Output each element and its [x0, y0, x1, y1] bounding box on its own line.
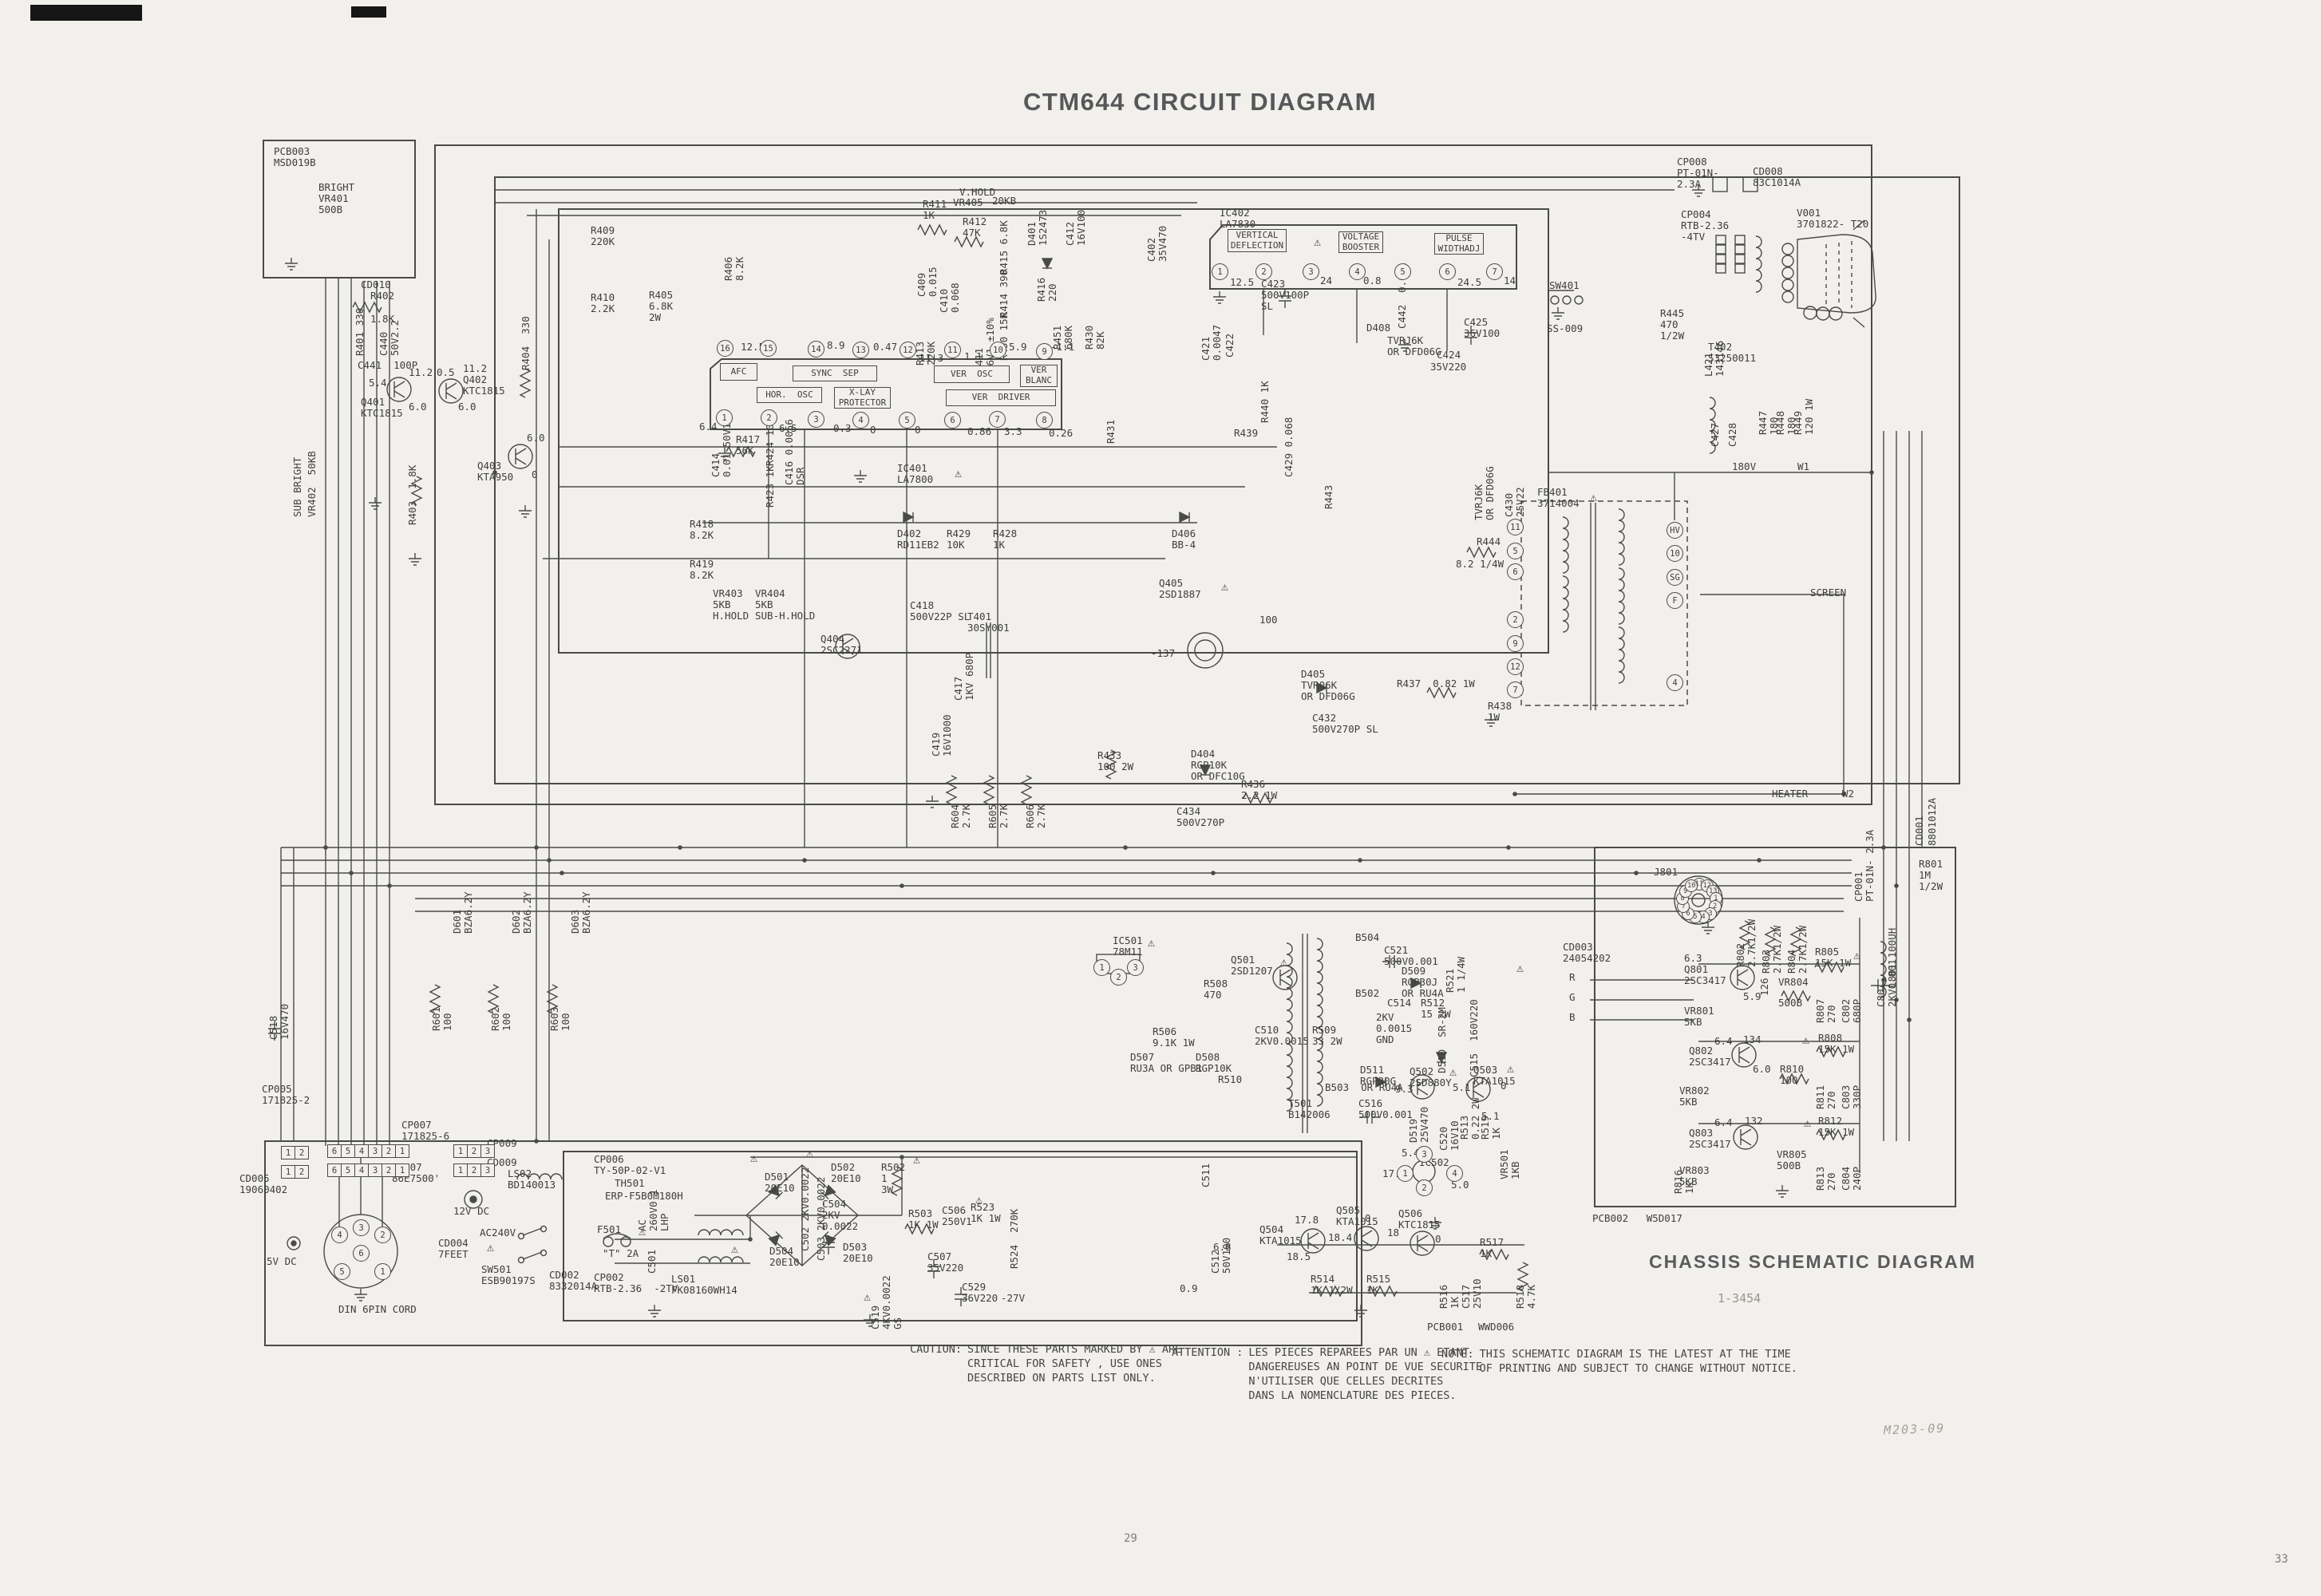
warning-icon: ⚠	[864, 1291, 871, 1303]
pin-number: 6	[353, 1245, 370, 1262]
component-label: 6.4	[1714, 1117, 1733, 1128]
component-label: 20KB	[992, 196, 1016, 207]
pin-number: 5	[334, 1263, 350, 1280]
pin-number: 15	[760, 340, 777, 357]
component-label: C529 36V220	[962, 1282, 998, 1304]
component-label: 11.3	[919, 353, 943, 364]
component-label: CD001	[1914, 816, 1925, 846]
component-label: C516 500V0.001	[1358, 1098, 1413, 1120]
chassis-title: CHASSIS SCHEMATIC DIAGRAM	[1649, 1251, 1976, 1273]
component-label: 0	[1435, 1234, 1441, 1245]
connector-pin: 1	[395, 1164, 409, 1176]
component-label: R411 1K	[923, 199, 947, 221]
pin-number: 8	[1036, 412, 1053, 429]
component-label: 8801012A	[1927, 798, 1938, 846]
handwritten-mark: M203-09	[1884, 1421, 1946, 1438]
junction-dots	[323, 470, 1912, 1242]
component-label: C504 2KV 0.0022	[822, 1199, 858, 1232]
component-label: 0.5	[437, 367, 455, 378]
function-block: VER OSC	[934, 365, 1010, 383]
component-label: Q404 2SC2271	[820, 634, 863, 656]
component-label: C803 330P	[1841, 1085, 1863, 1109]
component-label: C409 0.015	[916, 267, 939, 297]
component-label: R433 100 2W	[1097, 750, 1133, 772]
component-label: R503 1K 1W	[908, 1208, 939, 1231]
pin-number: 9	[1036, 343, 1053, 360]
component-label: 17.8	[1295, 1215, 1319, 1226]
component-label: R444	[1477, 536, 1501, 547]
page-number-right: 33	[2275, 1553, 2288, 1566]
component-label: 35V220	[1430, 361, 1466, 373]
component-label: C804 240P	[1841, 1167, 1863, 1191]
warning-icon: ⚠	[1853, 950, 1860, 962]
component-label: C418 500V22P SL	[910, 600, 970, 622]
component-label: VR404 5KB SUB-H.HOLD	[755, 588, 815, 622]
component-label: R431	[1105, 420, 1117, 444]
component-label: R402	[370, 290, 394, 302]
component-label: SW401	[1549, 280, 1580, 291]
component-label: 11.2 Q402 KTC1815	[463, 363, 505, 397]
component-label: 132	[1745, 1116, 1763, 1127]
component-label: C414 0.01 50V1	[710, 423, 733, 477]
component-label: AC240V	[480, 1227, 516, 1238]
component-label: 500B	[1778, 997, 1802, 1009]
note-text: THIS SCHEMATIC DIAGRAM IS THE LATEST AT …	[1480, 1347, 1797, 1376]
component-label: 24	[1320, 275, 1332, 286]
connector-pin: 1	[282, 1166, 295, 1178]
pin-number: 6	[1507, 563, 1524, 580]
component-label: R	[1569, 972, 1576, 983]
component-label: D503 20E10	[843, 1242, 873, 1264]
component-label: 0.9	[1180, 1283, 1198, 1294]
component-label: PCB002 W5D017	[1592, 1213, 1682, 1224]
component-label: SS-009	[1547, 323, 1583, 334]
component-label: 0	[870, 425, 876, 436]
component-label: CD003 24054202	[1563, 942, 1611, 964]
component-label: IC401 LA7800	[897, 463, 933, 485]
component-label: VR403 5KB H.HOLD	[713, 588, 749, 622]
pin-number: 1	[1093, 959, 1110, 976]
component-label: R418 8.2K	[690, 519, 714, 541]
component-label: SW501 ESB90197S	[481, 1264, 536, 1286]
warning-icon: ⚠	[1449, 1066, 1457, 1078]
component-label: C434 500V270P	[1176, 806, 1224, 828]
component-label: 5.4	[369, 377, 387, 389]
warning-icon: ⚠	[731, 1243, 738, 1255]
component-label: R443	[1323, 485, 1334, 509]
schematic-page: CTM644 CIRCUIT DIAGRAM CAUTION: SINCE TH…	[0, 0, 2321, 1596]
pin-number: 3	[1127, 959, 1144, 976]
function-block: VOLTAGE BOOSTER	[1338, 231, 1383, 253]
component-label: 3.3	[1004, 426, 1022, 437]
component-label: R521 1 1/4W	[1445, 957, 1467, 993]
component-label: 18.5	[1287, 1251, 1311, 1262]
component-label: VR802 5KB	[1679, 1085, 1710, 1108]
component-label: D601 BZA6.2Y	[452, 891, 474, 934]
component-label: 8.9	[827, 340, 845, 351]
component-label: 6.0	[409, 401, 427, 413]
component-label: C502 2KV0.0022	[800, 1167, 811, 1251]
function-block: X-LAY PROTECTOR	[834, 387, 891, 409]
connector-pins: 654321	[327, 1163, 409, 1177]
component-label: C510 2KV0.0015	[1255, 1025, 1309, 1047]
scan-artifact	[30, 5, 142, 21]
component-label: 14	[1504, 275, 1516, 286]
component-label: VR804	[1778, 977, 1809, 988]
component-label: R606 2.7K	[1025, 804, 1047, 828]
note-note: NOTE: THIS SCHEMATIC DIAGRAM IS THE LATE…	[1441, 1347, 1797, 1376]
component-label: V001 3701822- T20	[1797, 207, 1868, 230]
note-label: NOTE:	[1441, 1347, 1474, 1376]
pin-number: 7	[1507, 681, 1524, 698]
pin-number: 14	[808, 341, 824, 358]
pin-number: 5	[1394, 263, 1411, 280]
component-label: R811 270	[1815, 1085, 1837, 1109]
component-label: R403 1.8K	[407, 465, 418, 525]
connector-pin: 6	[328, 1164, 341, 1176]
connector-pin: 2	[382, 1145, 395, 1157]
component-label: R436 2.2 1W	[1241, 779, 1277, 801]
component-label: CP007 171825-6	[401, 1120, 449, 1142]
component-label: R813 270	[1815, 1167, 1837, 1191]
pin-number: 1	[1397, 1165, 1414, 1182]
component-label: R423 1K	[765, 465, 776, 508]
pin-number: 3	[1416, 1146, 1433, 1163]
scan-artifact	[351, 6, 386, 18]
component-label: T501 B142006	[1288, 1098, 1331, 1120]
component-label: D504 20E10	[769, 1246, 800, 1268]
component-label: 8.2 1/4W	[1456, 559, 1504, 570]
component-label: R445 470 1/2W	[1660, 308, 1684, 342]
component-label: R428 1K	[993, 528, 1017, 551]
component-label: 2KV 0.0015 GND	[1376, 1012, 1412, 1045]
component-label: 12V DC	[453, 1206, 489, 1217]
component-label: Q506 KTC1815	[1398, 1208, 1441, 1231]
component-symbols	[268, 177, 1890, 1326]
component-label: CP002 RTB-2.36 -2TV	[594, 1272, 678, 1294]
caution-text: SINCE THESE PARTS MARKED BY ⚠ ARE CRITIC…	[967, 1342, 1181, 1385]
connector-pin: 2	[295, 1166, 308, 1178]
component-label: D511 RGP30G	[1360, 1065, 1396, 1087]
component-label: R519 1K	[1480, 1116, 1502, 1140]
pin-number: SG	[1667, 569, 1683, 586]
component-label: C430 25V22	[1504, 487, 1526, 517]
component-label: C519 4KV0.0022 GS	[870, 1275, 903, 1329]
component-label: -1.1	[1050, 342, 1074, 353]
component-label: D402 RD11EB2	[897, 528, 939, 551]
pin-number: 1	[716, 409, 733, 426]
component-label: CP008 PT-01N- 2.3A	[1677, 156, 1719, 190]
component-label: D408	[1366, 322, 1390, 334]
component-label: G	[1569, 992, 1576, 1003]
attention-note: ATTENTION : LES PIECES REPAREES PAR UN ⚠…	[1172, 1345, 1482, 1403]
component-label: R810 100	[1780, 1064, 1804, 1086]
component-label: R603 100	[549, 1007, 571, 1031]
component-label: R808 15K 1W	[1818, 1033, 1854, 1055]
component-label: 0	[1365, 1213, 1371, 1224]
function-block: AFC	[720, 363, 757, 381]
component-label: 12.5	[1230, 277, 1254, 288]
component-label: R816 1K	[1673, 1170, 1695, 1194]
component-label: C428	[1727, 423, 1738, 447]
crt-symbol	[1782, 220, 1876, 327]
component-label: C425 36V100	[1464, 317, 1500, 339]
component-label: WWD006	[1478, 1321, 1514, 1333]
component-label: SCREEN	[1810, 587, 1846, 598]
component-label: CD004 7FEET	[438, 1238, 469, 1260]
component-label: 0.47	[873, 342, 897, 353]
pin-number: 12	[900, 342, 916, 358]
component-label: Q802 2SC3417	[1689, 1045, 1731, 1068]
connector-pins: 12	[281, 1165, 309, 1179]
component-label: D404 RGP10K OR DFC10G	[1191, 749, 1245, 782]
pin-number: 3	[353, 1219, 370, 1236]
pin-number: 5	[899, 412, 915, 429]
function-block: HOR. OSC	[757, 387, 822, 403]
component-label: VR805 500B	[1777, 1149, 1807, 1171]
component-label: IC501 78M11	[1113, 935, 1143, 958]
component-label: Q505 KTA1015	[1336, 1205, 1378, 1227]
component-label: R605 2.7K	[987, 804, 1010, 828]
component-label: C432 500V270P SL	[1312, 713, 1378, 735]
connector-pin: 2	[467, 1164, 480, 1176]
function-block: PULSE WIDTHADJ	[1434, 233, 1484, 255]
pin-number: 10	[1667, 545, 1683, 562]
component-label: LS01 FK08160WH14	[671, 1274, 737, 1296]
component-label: R807 270	[1815, 999, 1837, 1023]
component-label: R439	[1234, 428, 1258, 439]
component-label: C802 680P	[1841, 999, 1863, 1023]
pin-number: 13	[852, 342, 869, 358]
pin-number: 6	[944, 412, 961, 429]
component-label: D509 RGP30J OR RU4A	[1402, 966, 1444, 999]
connector-pin: 4	[354, 1145, 368, 1157]
component-label: R502 1 3W	[881, 1162, 905, 1195]
connector-pin: 2	[467, 1145, 480, 1157]
component-label: R406 8.2K	[723, 257, 745, 281]
pin-number: 11	[944, 342, 961, 358]
component-label: 180V	[1732, 461, 1756, 472]
pin-number: 7	[989, 411, 1006, 428]
component-label: 0.8	[1363, 275, 1382, 286]
connector-pin: 5	[341, 1164, 354, 1176]
connector-pin: 1	[454, 1164, 467, 1176]
component-label: CP005 171825-2	[262, 1084, 310, 1106]
component-label: D507 RU3A OR GPB1	[1130, 1052, 1202, 1074]
component-label: FB401 3714004	[1537, 487, 1580, 509]
component-label: C517 25V10	[1461, 1278, 1483, 1309]
component-label: -27V	[1001, 1293, 1025, 1304]
component-label: C410 0.068	[939, 282, 961, 313]
component-label: 0	[1501, 1080, 1507, 1092]
component-label: C419 16V1000	[931, 714, 953, 757]
pin-number: 9	[1507, 635, 1524, 652]
component-label: R801 1M 1/2W	[1919, 859, 1943, 892]
component-label: Q502 2SD880Y	[1410, 1066, 1452, 1088]
warning-icon: ⚠	[975, 1194, 983, 1206]
pin-number: 16	[717, 340, 733, 357]
connector-pin: 3	[480, 1164, 494, 1176]
pin-number: F	[1667, 592, 1683, 609]
component-label: D405 TVR06K OR DFD06G	[1301, 669, 1355, 702]
component-label: D603 BZA6.2Y	[570, 891, 592, 934]
component-label: IC402 LA7830	[1220, 207, 1255, 230]
component-label: TVRJ6K OR DFD06G	[1473, 466, 1496, 520]
component-label: SUB BRIGHT	[292, 457, 303, 517]
component-label: W1	[1797, 461, 1809, 472]
component-label: R440 1K	[1259, 381, 1271, 423]
component-label: C521 500V0.001	[1384, 945, 1438, 967]
pin-number: 1	[374, 1263, 391, 1280]
warning-icon: ⚠	[1280, 956, 1287, 968]
component-label: R514 1K 1/2W	[1311, 1274, 1353, 1296]
pin-number: 2	[1110, 969, 1127, 986]
component-label: -137	[1151, 648, 1175, 659]
component-label: B504	[1355, 932, 1379, 943]
component-label: R516 1K	[1438, 1285, 1461, 1309]
function-block: VERTICAL DEFLECTION	[1228, 229, 1287, 252]
connector-pin: 1	[395, 1145, 409, 1157]
component-label: C440 50V2.2	[378, 320, 401, 356]
component-label: R430 82K	[1084, 326, 1106, 350]
component-label: R508 470	[1204, 978, 1228, 1001]
component-label: 6.0	[458, 401, 476, 413]
warning-icon: ⚠	[1507, 1063, 1514, 1075]
component-label: R412 47K	[963, 216, 987, 239]
pin-number: 4	[852, 412, 869, 429]
component-label: R510	[1218, 1074, 1242, 1085]
component-label: R437 0.82 1W	[1397, 678, 1475, 689]
component-label: 9.3	[1395, 1084, 1414, 1095]
pin-number: 5	[1507, 543, 1524, 559]
component-label: CP001 PT-01N- 2.3A	[1853, 830, 1876, 902]
connector-pin: 3	[480, 1145, 494, 1157]
pin-number: 2	[374, 1227, 391, 1243]
component-label: VR405	[953, 197, 983, 208]
component-label: L801 100UH	[1887, 928, 1898, 988]
component-label: R515 1K	[1366, 1274, 1390, 1296]
component-label: 1.1	[964, 351, 983, 362]
component-label: D501 20E10	[765, 1171, 795, 1194]
component-label: Q401 KTC1815	[361, 397, 403, 419]
warning-icon: ⚠	[487, 1242, 494, 1254]
component-label: 0.26	[1049, 428, 1073, 439]
pin-number: 1	[1212, 263, 1228, 280]
pin-number: 6	[1439, 263, 1456, 280]
pin-number: 2	[761, 409, 777, 426]
component-label: 18	[1387, 1227, 1399, 1238]
power-switch	[523, 1228, 542, 1259]
connector-pins: 123	[453, 1144, 495, 1158]
component-label: C417 1KV 680P	[953, 653, 975, 701]
pin-number: 3	[1303, 263, 1319, 280]
component-label: TH501	[615, 1178, 645, 1189]
connector-pin: 1	[454, 1145, 467, 1157]
component-label: LS02 BD140013	[508, 1168, 556, 1191]
component-label: D406 BB-4	[1172, 528, 1196, 551]
component-label: R506 9.1K 1W	[1153, 1026, 1195, 1049]
component-label: 100	[1259, 614, 1278, 626]
component-label: C507 35V220	[927, 1251, 963, 1274]
component-label: B502	[1355, 988, 1379, 999]
fuse	[603, 1237, 613, 1246]
function-block: VER BLANC	[1020, 365, 1058, 387]
component-label: 18.4	[1328, 1232, 1352, 1243]
component-label: PCB003 MSD019B	[274, 146, 316, 168]
component-label: R414 390	[998, 270, 1010, 318]
component-label: Q504 KTA1015	[1259, 1224, 1302, 1246]
component-label: C421 0.0047	[1200, 325, 1223, 361]
component-label: CP006 TY-50P-02-V1	[594, 1154, 666, 1176]
component-label: J801	[1654, 867, 1678, 878]
component-label: R409 220K	[591, 225, 615, 247]
chassis-number: 1-3454	[1718, 1291, 1761, 1306]
component-label: VR801 5KB	[1684, 1005, 1714, 1028]
component-label: C423 500V100P SL	[1261, 279, 1309, 312]
component-label: 6.0	[1753, 1064, 1771, 1075]
component-label: 0.3	[833, 423, 852, 434]
socket-pin-number: 10	[1685, 879, 1698, 892]
component-label: 0	[532, 469, 538, 480]
warning-icon: ⚠	[806, 1148, 813, 1159]
component-label: R601 100	[431, 1007, 453, 1031]
component-label: CD002 8332014A	[549, 1270, 597, 1292]
component-label: BRIGHT VR401 500B	[318, 182, 354, 215]
component-label: R410 2.2K	[591, 292, 615, 314]
component-label: C520 16V10	[1438, 1120, 1461, 1151]
component-label: CD010	[361, 279, 391, 290]
connector-pins: 123	[453, 1163, 495, 1177]
component-label: VR402 50KB	[306, 451, 318, 517]
component-label: 0.86	[967, 426, 991, 437]
component-label: Q403 KTA950	[477, 460, 513, 483]
component-label: CD008 83C1014A	[1753, 166, 1801, 188]
component-label: D502 20E10	[831, 1162, 861, 1184]
connector-pin: 3	[368, 1145, 382, 1157]
component-label: 6.3 Q801 2SC3417	[1684, 953, 1726, 986]
component-label: R812 15K 1W	[1818, 1116, 1854, 1138]
warning-icon: ⚠	[750, 1152, 757, 1164]
component-label: HEATER	[1772, 788, 1808, 800]
component-label: R509 33 2W	[1312, 1025, 1342, 1047]
component-label: Q501 2SD1207	[1231, 954, 1273, 977]
component-label: 134	[1743, 1034, 1762, 1045]
component-label: R416 220	[1036, 278, 1058, 302]
warning-icon: ⚠	[1148, 937, 1155, 949]
connector-pins: 12	[281, 1146, 309, 1159]
component-label: R805 15K 1W	[1815, 946, 1851, 969]
page-title: CTM644 CIRCUIT DIAGRAM	[1023, 88, 1377, 117]
component-label: 5.9	[1009, 342, 1027, 353]
component-label: 11.2	[409, 367, 433, 378]
component-label: C412 16V100	[1065, 210, 1087, 246]
connector-pins: 654321	[327, 1144, 409, 1158]
component-label: R438 1W	[1488, 701, 1512, 723]
component-label: C511	[1200, 1163, 1212, 1187]
pin-number: 11	[1507, 519, 1524, 535]
pin-number: 12	[1507, 658, 1524, 675]
component-label: 5V DC	[267, 1256, 297, 1267]
warning-icon: ⚠	[955, 468, 962, 480]
component-label: R803 2.7K1/2W	[1761, 926, 1783, 974]
component-label: T401 30SY001	[967, 611, 1010, 634]
component-label: 6.0	[527, 433, 545, 444]
component-label: TVRJ6K OR DFD06G	[1387, 335, 1441, 358]
component-label: D401 1S2473	[1026, 210, 1049, 246]
component-label: B	[1569, 1012, 1576, 1023]
pin-number: 7	[1486, 263, 1503, 280]
connector-pin: 4	[354, 1164, 368, 1176]
